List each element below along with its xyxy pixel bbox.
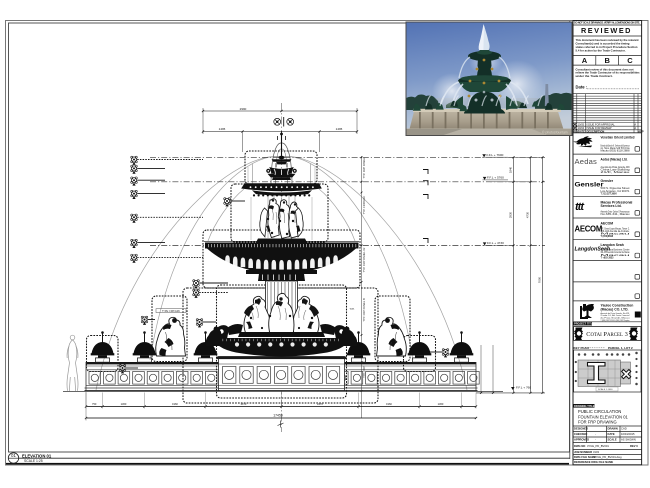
svg-text:DO NOT SCALE DRAWINGS. VERIFY: DO NOT SCALE DRAWINGS. VERIFY ALL DIMENS… (574, 21, 640, 25)
svg-text:COTAI PARCEL 3: COTAI PARCEL 3 (586, 331, 628, 338)
svg-text:B: B (604, 56, 610, 65)
svg-text:956-1110 Avenida da Amizade,: 956-1110 Avenida da Amizade, (601, 230, 630, 233)
svg-text:PROJECT TITLE: PROJECT TITLE (574, 322, 594, 326)
svg-text:-: - (595, 439, 596, 442)
svg-text:TYP. FRP PANEL B: TYP. FRP PANEL B (362, 298, 366, 322)
svg-text:Aedas (Macau) Ltd.: Aedas (Macau) Ltd. (601, 157, 628, 161)
svg-text:17459: 17459 (273, 413, 283, 417)
svg-text:10/04/2015: 10/04/2015 (621, 432, 635, 436)
svg-text:2990: 2990 (240, 107, 247, 111)
svg-text:Los Angeles, CA 90071: Los Angeles, CA 90071 (601, 190, 631, 193)
svg-text:No.335-341, Macau: No.335-341, Macau (601, 214, 631, 216)
svg-text:CHECKED: CHECKED (574, 432, 587, 436)
svg-text:T 213.327.3600: T 213.327.3600 (601, 193, 618, 195)
svg-text:1495: 1495 (219, 127, 226, 131)
svg-text:DATE: DATE (608, 432, 615, 436)
svg-text:T (853) 2837 3255 F (853) 28: T (853) 2837 3255 F (853) 2837 3option (601, 319, 631, 322)
svg-text:1495: 1495 (336, 127, 343, 131)
svg-text:F.F.L + 760: F.F.L + 760 (516, 386, 531, 390)
svg-text:10/05: 10/05 (578, 123, 585, 127)
svg-text:Avenida da Praia Grande 409: Avenida da Praia Grande 409 (601, 166, 631, 169)
svg-text:Alameda Dutor Carlos D'Assumpc: Alameda Dutor Carlos D'Assumpcao (601, 211, 631, 214)
svg-text:Langdon Seah: Langdon Seah (601, 243, 624, 247)
svg-text:16/F Fortuna Business Centre: 16/F Fortuna Business Centre (601, 249, 631, 252)
svg-text:Estrada da Baia de N. Senhora: Estrada da Baia de N. Senhora da Esperan… (601, 144, 630, 147)
svg-text:2930: 2930 (509, 211, 513, 218)
svg-text:(Macau) CO. LTD.: (Macau) CO. LTD. (601, 307, 629, 311)
svg-text:AECOM: AECOM (575, 225, 603, 234)
svg-text:under the Trade Contract.: under the Trade Contract. (576, 74, 613, 78)
svg-text:Date :: Date : (576, 85, 588, 90)
svg-text:1360: 1360 (121, 402, 127, 406)
svg-text:5.4 for action by the Trade Co: 5.4 for action by the Trade Contractor. (576, 48, 626, 52)
svg-text:ISSUE FOR APPROVAL: ISSUE FOR APPROVAL (587, 123, 616, 127)
svg-text:1360: 1360 (438, 402, 444, 406)
svg-text:2470: 2470 (317, 402, 323, 406)
svg-text:3YUE_PD_BV001.dwg: 3YUE_PD_BV001.dwg (594, 455, 622, 459)
svg-text:3103: 3103 (593, 450, 599, 454)
svg-text:7600: 7600 (538, 276, 542, 283)
svg-text:DWG NO: DWG NO (574, 444, 585, 448)
svg-text:Gensler: Gensler (601, 179, 614, 183)
svg-text:F.F.L + 7600: F.F.L + 7600 (487, 153, 504, 157)
svg-text:DATE: DATE (578, 129, 585, 133)
svg-text:APPROVED: APPROVED (574, 438, 589, 442)
svg-text:ELEVATION 01: ELEVATION 01 (22, 453, 52, 458)
svg-text:PARCEL 1, LOT 2: PARCEL 1, LOT 2 (608, 346, 633, 350)
svg-text:SCALE 1:25: SCALE 1:25 (24, 459, 43, 463)
svg-text:TYP. FRP/GRC: TYP. FRP/GRC (362, 196, 366, 215)
svg-text:F.F.L + 4730: F.F.L + 4730 (487, 241, 504, 245)
svg-text:-: - (595, 433, 596, 436)
svg-text:KEY PLAN: KEY PLAN (574, 346, 589, 350)
svg-text:2470: 2470 (241, 402, 247, 406)
svg-text:AS SHOWN: AS SHOWN (621, 438, 636, 442)
svg-text:1840: 1840 (509, 166, 513, 173)
svg-text:TYP. FRP PANEL: TYP. FRP PANEL (362, 157, 366, 179)
svg-text:FOUNTAIN ELEVATION 01: FOUNTAIN ELEVATION 01 (578, 414, 629, 419)
svg-text:T +853 2833: T +853 2833 (601, 257, 615, 259)
svg-text:01: 01 (11, 453, 16, 458)
svg-text:750: 750 (92, 402, 97, 406)
svg-text:REFERENCE DWG FILE NAME: REFERENCE DWG FILE NAME (574, 460, 613, 464)
svg-text:DESCRIPTION: DESCRIPTION (587, 129, 605, 133)
svg-text:FOR FRP DRAWING: FOR FRP DRAWING (578, 420, 617, 425)
svg-text:Services Ltd.: Services Ltd. (601, 204, 622, 208)
svg-text:Macau (853) 8118 2888: Macau (853) 8118 2888 (601, 151, 631, 153)
svg-text:8/F, Grand Lapa Macau, Tower 2: 8/F, Grand Lapa Macau, Tower 2, (601, 227, 630, 230)
svg-text:JOB NUMBER: JOB NUMBER (574, 450, 592, 454)
svg-text:Aedas: Aedas (575, 157, 598, 166)
svg-text:SCALE: SCALE (608, 438, 617, 442)
svg-text:1960: 1960 (386, 402, 392, 406)
svg-text:301-355 Avenida Comercial de M: 301-355 Avenida Comercial de Macau (601, 251, 631, 254)
svg-text:Venetian Orient Limited: Venetian Orient Limited (601, 136, 635, 140)
svg-text:s/n, Taipa, Macau SAR P.R.Chi: s/n, Taipa, Macau SAR P.R.China (601, 147, 631, 150)
svg-text:21/F, Macau: 21/F, Macau (601, 172, 632, 174)
svg-text:REV 0: REV 0 (630, 444, 638, 448)
svg-text:1960: 1960 (172, 402, 178, 406)
svg-text:© photosfountain: © photosfountain (542, 131, 568, 135)
svg-text:A: A (634, 123, 636, 127)
svg-text:SCALE 1:1000: SCALE 1:1000 (598, 388, 613, 391)
svg-text:CAD: CAD (621, 427, 627, 431)
svg-text:A: A (582, 56, 588, 65)
svg-text:F.F.L + 5760: F.F.L + 5760 (487, 176, 504, 180)
svg-text:DWG FILE NAME: DWG FILE NAME (574, 455, 596, 459)
svg-text:4730: 4730 (526, 211, 530, 218)
svg-text:TYP.: TYP. (349, 308, 354, 311)
svg-text:DRAWN: DRAWN (608, 427, 618, 431)
svg-text:C: C (627, 56, 633, 65)
svg-text:A: A (634, 126, 636, 130)
svg-text:REVIEWED: REVIEWED (581, 26, 632, 35)
svg-text:DRAWING TITLE: DRAWING TITLE (574, 404, 595, 408)
svg-text:APP: APP (638, 129, 644, 133)
svg-text:3YUE_PD_BV001: 3YUE_PD_BV001 (587, 444, 609, 448)
svg-text:TYP. FRP PANEL 02: TYP. FRP PANEL 02 (362, 247, 366, 272)
svg-text:DESIGNED: DESIGNED (574, 427, 588, 431)
svg-text:T (853)8898: T (853)8898 (601, 236, 614, 238)
svg-text:PUBLIC CIRCULATION: PUBLIC CIRCULATION (578, 409, 621, 414)
svg-text:500 S. Figueroa Street: 500 S. Figueroa Street (601, 187, 630, 190)
svg-text:AECOM: AECOM (601, 222, 614, 226)
